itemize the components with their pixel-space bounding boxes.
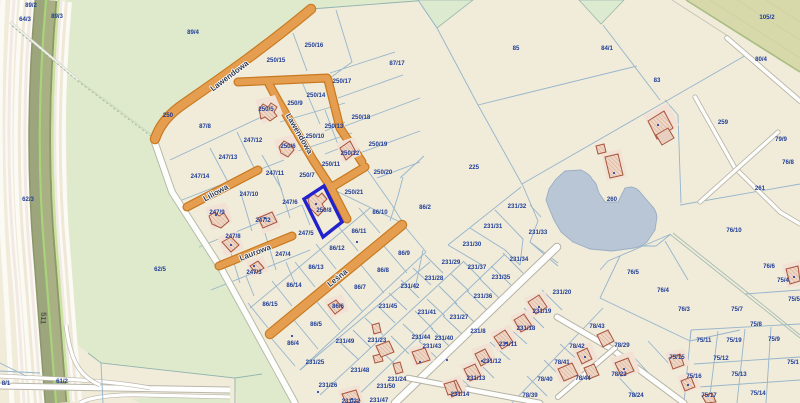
svg-text:250/13: 250/13 [325, 123, 344, 130]
svg-text:231/22: 231/22 [342, 398, 361, 403]
svg-text:75/13: 75/13 [731, 371, 747, 378]
svg-text:231/27: 231/27 [450, 314, 469, 321]
svg-text:76/8: 76/8 [782, 159, 794, 166]
svg-text:250: 250 [163, 112, 174, 119]
svg-text:247/2: 247/2 [255, 217, 271, 224]
svg-text:231/36: 231/36 [474, 293, 493, 300]
svg-text:250/10: 250/10 [306, 133, 325, 140]
svg-text:86/10: 86/10 [372, 209, 388, 216]
svg-text:225: 225 [469, 164, 480, 171]
svg-text:76/10: 76/10 [726, 227, 742, 234]
svg-text:89/3: 89/3 [51, 13, 63, 20]
svg-text:231/30: 231/30 [463, 241, 482, 248]
svg-text:247/9: 247/9 [209, 209, 225, 216]
svg-text:231/41: 231/41 [418, 309, 437, 316]
svg-text:231/49: 231/49 [336, 338, 355, 345]
svg-text:75/8: 75/8 [750, 321, 762, 328]
svg-text:86/6: 86/6 [332, 303, 344, 310]
svg-text:231/47: 231/47 [370, 397, 389, 403]
svg-text:75/16: 75/16 [686, 373, 702, 380]
svg-text:247/13: 247/13 [219, 154, 238, 161]
svg-text:61/2: 61/2 [56, 378, 68, 385]
svg-text:86/5: 86/5 [310, 321, 322, 328]
svg-text:86/12: 86/12 [329, 245, 345, 252]
svg-text:64/3: 64/3 [19, 16, 31, 23]
svg-text:231/28: 231/28 [425, 275, 444, 282]
svg-text:231/37: 231/37 [468, 264, 487, 271]
svg-text:250/9: 250/9 [287, 100, 303, 107]
svg-text:231/35: 231/35 [492, 274, 511, 281]
svg-text:86/7: 86/7 [354, 284, 366, 291]
svg-text:62/3: 62/3 [22, 196, 34, 203]
svg-text:75/11: 75/11 [697, 337, 713, 344]
svg-text:75/1: 75/1 [787, 359, 799, 366]
svg-text:231/20: 231/20 [553, 289, 572, 296]
svg-text:231/18: 231/18 [517, 325, 536, 332]
svg-text:62/5: 62/5 [154, 266, 166, 273]
svg-text:76/6: 76/6 [763, 263, 775, 270]
svg-text:247/4: 247/4 [275, 251, 291, 258]
svg-text:250/18: 250/18 [352, 114, 371, 121]
svg-text:78/23: 78/23 [611, 371, 627, 378]
svg-text:250/17: 250/17 [333, 78, 352, 85]
svg-text:78/39: 78/39 [522, 392, 538, 399]
svg-text:87/17: 87/17 [389, 60, 405, 67]
svg-text:86/8: 86/8 [377, 267, 389, 274]
svg-text:83: 83 [654, 77, 661, 84]
svg-text:231/29: 231/29 [442, 259, 461, 266]
svg-text:261: 261 [755, 185, 766, 192]
svg-text:231/48: 231/48 [351, 367, 370, 374]
svg-text:247/8: 247/8 [225, 233, 241, 240]
svg-text:75/14: 75/14 [750, 390, 766, 397]
svg-text:84/1: 84/1 [601, 45, 613, 52]
svg-text:231/50: 231/50 [377, 383, 396, 390]
svg-text:85: 85 [513, 45, 520, 52]
svg-text:86/13: 86/13 [308, 264, 324, 271]
svg-text:250/5: 250/5 [258, 106, 274, 113]
svg-text:231/19: 231/19 [533, 308, 552, 315]
svg-text:75/19: 75/19 [726, 337, 742, 344]
svg-text:231/34: 231/34 [510, 256, 529, 263]
svg-text:231/44: 231/44 [412, 334, 431, 341]
svg-text:231/23: 231/23 [368, 337, 387, 344]
svg-text:231/11: 231/11 [499, 341, 518, 348]
svg-text:78/44: 78/44 [575, 375, 591, 382]
svg-text:250/15: 250/15 [267, 57, 286, 64]
svg-text:76/3: 76/3 [678, 306, 690, 313]
svg-text:250/16: 250/16 [305, 42, 324, 49]
svg-text:250/19: 250/19 [369, 141, 388, 148]
svg-text:231/8: 231/8 [470, 328, 486, 335]
svg-text:247/14: 247/14 [191, 173, 210, 180]
svg-text:250/20: 250/20 [374, 169, 393, 176]
svg-text:247/10: 247/10 [240, 191, 259, 198]
svg-text:231/31: 231/31 [484, 223, 503, 230]
svg-text:86/4: 86/4 [287, 340, 299, 347]
svg-text:76/5: 76/5 [627, 269, 639, 276]
svg-text:247/6: 247/6 [282, 199, 298, 206]
svg-text:75/5: 75/5 [788, 296, 800, 303]
svg-text:80/4: 80/4 [755, 56, 767, 63]
svg-text:231/25: 231/25 [306, 359, 325, 366]
svg-text:86/14: 86/14 [286, 282, 302, 289]
svg-text:75/4: 75/4 [777, 277, 789, 284]
svg-text:511: 511 [39, 312, 49, 325]
svg-text:75/7: 75/7 [731, 306, 743, 313]
svg-text:86/2: 86/2 [419, 204, 431, 211]
svg-text:260: 260 [607, 196, 618, 203]
svg-text:86/15: 86/15 [262, 301, 278, 308]
svg-text:231/12: 231/12 [483, 358, 502, 365]
svg-text:250/8: 250/8 [316, 207, 332, 214]
svg-text:231/40: 231/40 [435, 335, 454, 342]
svg-text:87/8: 87/8 [199, 123, 211, 130]
svg-text:231/33: 231/33 [529, 229, 548, 236]
svg-text:231/24: 231/24 [388, 376, 407, 383]
svg-text:231/32: 231/32 [508, 203, 527, 210]
svg-text:78/40: 78/40 [537, 376, 553, 383]
svg-text:250/12: 250/12 [341, 150, 360, 157]
svg-text:78/43: 78/43 [589, 323, 605, 330]
svg-text:259: 259 [718, 119, 729, 126]
svg-text:86/9: 86/9 [398, 250, 410, 257]
svg-text:86/11: 86/11 [352, 228, 368, 235]
svg-text:75/15: 75/15 [669, 354, 685, 361]
svg-text:78/41: 78/41 [554, 359, 570, 366]
svg-text:89/4: 89/4 [187, 29, 199, 36]
svg-text:250/11: 250/11 [322, 161, 341, 168]
svg-text:231/43: 231/43 [423, 343, 442, 350]
svg-text:250/6: 250/6 [280, 143, 296, 150]
svg-text:250/14: 250/14 [307, 92, 326, 99]
svg-text:79/9: 79/9 [775, 136, 787, 143]
svg-text:250/21: 250/21 [345, 189, 364, 196]
svg-text:247/3: 247/3 [246, 269, 262, 276]
svg-text:89/2: 89/2 [25, 2, 37, 9]
svg-text:75/12: 75/12 [713, 355, 729, 362]
svg-text:8/1: 8/1 [2, 380, 11, 387]
svg-text:78/42: 78/42 [569, 343, 585, 350]
svg-text:247/12: 247/12 [244, 137, 263, 144]
svg-text:78/24: 78/24 [628, 392, 644, 399]
svg-text:247/5: 247/5 [298, 230, 314, 237]
svg-text:105/2: 105/2 [759, 14, 775, 21]
svg-text:231/26: 231/26 [319, 382, 338, 389]
svg-text:231/13: 231/13 [467, 375, 486, 382]
svg-text:76/4: 76/4 [657, 287, 669, 294]
svg-text:231/42: 231/42 [401, 283, 420, 290]
svg-text:231/45: 231/45 [379, 303, 398, 310]
svg-text:247/11: 247/11 [266, 170, 285, 177]
svg-text:75/17: 75/17 [701, 392, 717, 399]
svg-text:75/9: 75/9 [768, 336, 780, 343]
svg-text:250/7: 250/7 [299, 172, 315, 179]
svg-text:78/29: 78/29 [614, 342, 630, 349]
svg-text:231/14: 231/14 [451, 391, 470, 398]
